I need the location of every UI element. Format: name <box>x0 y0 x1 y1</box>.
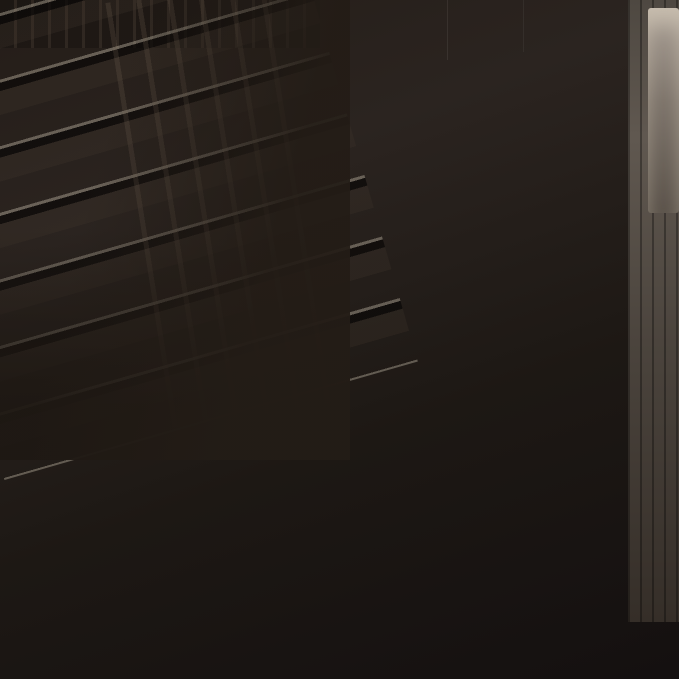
wall-seam <box>523 0 524 52</box>
product-infographic: Plug No Battery,Piug in Use Setup Standi… <box>0 0 679 679</box>
wall-seam <box>447 0 448 60</box>
